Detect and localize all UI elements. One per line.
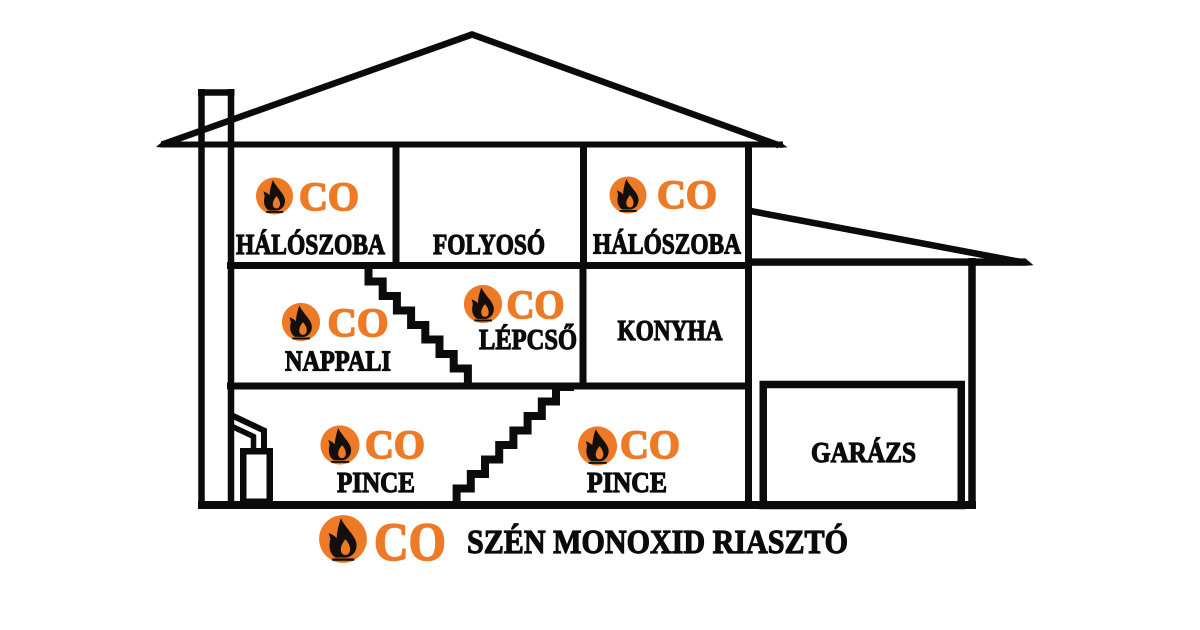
svg-text:NAPPALI: NAPPALI bbox=[285, 347, 391, 378]
svg-text:PINCE: PINCE bbox=[337, 468, 415, 499]
svg-text:PINCE: PINCE bbox=[587, 468, 667, 499]
svg-text:CO: CO bbox=[328, 300, 389, 345]
svg-text:CO: CO bbox=[299, 174, 359, 219]
svg-text:FOLYOSÓ: FOLYOSÓ bbox=[433, 230, 545, 261]
svg-text:HÁLÓSZOBA: HÁLÓSZOBA bbox=[236, 230, 386, 261]
svg-text:CO: CO bbox=[620, 422, 680, 467]
svg-text:CO: CO bbox=[657, 172, 717, 217]
svg-text:CO: CO bbox=[365, 422, 425, 467]
svg-text:HÁLÓSZOBA: HÁLÓSZOBA bbox=[593, 230, 742, 261]
svg-text:KONYHA: KONYHA bbox=[618, 316, 724, 347]
svg-text:CO: CO bbox=[374, 512, 446, 572]
svg-text:GARÁZS: GARÁZS bbox=[811, 438, 916, 469]
svg-text:CO: CO bbox=[507, 282, 565, 327]
svg-text:LÉPCSŐ: LÉPCSŐ bbox=[479, 324, 577, 356]
svg-text:SZÉN MONOXID RIASZTÓ: SZÉN MONOXID RIASZTÓ bbox=[467, 523, 848, 561]
